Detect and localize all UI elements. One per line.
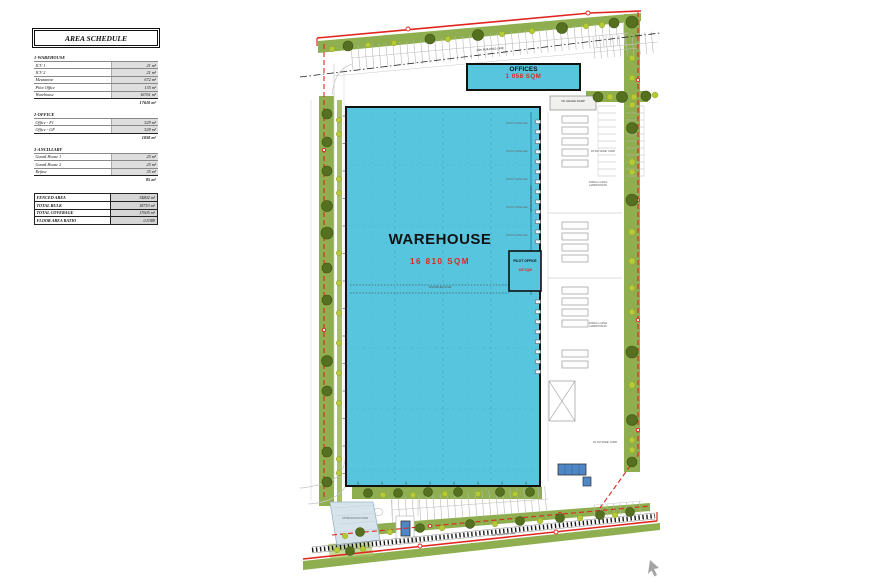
on-grade-ramp-label: ON GRADE RAMP bbox=[550, 100, 596, 103]
mezzanine-over-label: MEZZANINE OVER bbox=[530, 168, 533, 212]
warehouse-building: DOCK LEVELLERDOCK LEVELLERDOCK LEVELLERD… bbox=[343, 64, 581, 487]
site-plan-sheet: AREA SCHEDULE 1-WAREHOUSEICV 121 m²ICV 2… bbox=[0, 0, 889, 584]
warehouse-label: WAREHOUSE bbox=[370, 232, 510, 249]
cursor-icon bbox=[648, 560, 659, 577]
offices-label: OFFICES bbox=[467, 66, 580, 73]
svg-text:DOCK LEVELLER: DOCK LEVELLER bbox=[506, 149, 527, 153]
pilot-office-label: PILOT OFFICE bbox=[510, 260, 541, 264]
attenuation-pond-label: ATTENUATION POND bbox=[333, 518, 377, 521]
site-plan-drawing: DOCK LEVELLERDOCK LEVELLERDOCK LEVELLERD… bbox=[0, 0, 889, 584]
sprinkler-zone-label: SPRINKLER ZONE bbox=[405, 287, 475, 290]
offices-area-label: 1 058 SQM bbox=[467, 74, 580, 81]
truck-bays bbox=[562, 116, 588, 368]
wide-yard-label-2: 45.1M WIDE YARD bbox=[580, 441, 630, 444]
warehouse-area-label: 16 810 SQM bbox=[370, 258, 510, 267]
hardstand-label-2: 1000mm HIGH HARDSTAND bbox=[585, 322, 611, 328]
warehouse-footprint bbox=[346, 107, 540, 486]
attenuation-pond bbox=[330, 502, 380, 546]
svg-text:DOCK LEVELLER: DOCK LEVELLER bbox=[506, 205, 527, 209]
svg-text:DOCK LEVELLER: DOCK LEVELLER bbox=[506, 121, 527, 125]
pilot-office-area-label: 135 SQM bbox=[510, 269, 541, 273]
guard-house-2 bbox=[583, 477, 591, 486]
hardstand-label-1: 1000mm HIGH HARDSTAND bbox=[585, 181, 611, 187]
svg-text:DOCK LEVELLER: DOCK LEVELLER bbox=[506, 177, 527, 181]
wide-yard-label-1: 45.1M WIDE YARD bbox=[578, 150, 628, 153]
